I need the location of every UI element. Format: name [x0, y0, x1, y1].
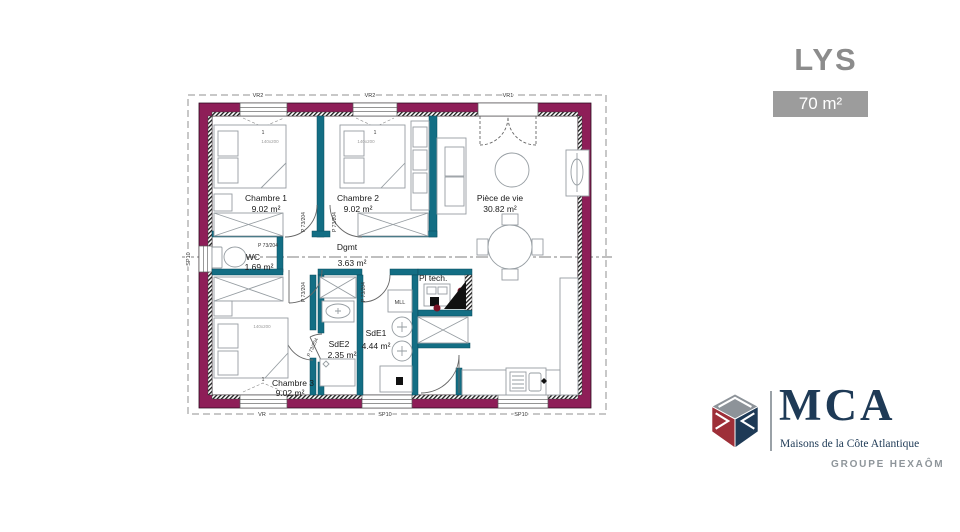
logo-group: GROUPE HEXAÔM — [831, 459, 944, 470]
window-ref-sp10-right: SP10 — [514, 412, 527, 418]
area-chambre3: 9.02 m² — [276, 388, 305, 398]
area-wc: 1.69 m² — [245, 262, 274, 272]
label-chambre3: Chambre 3 — [272, 378, 314, 388]
sde2-fixtures — [320, 277, 356, 386]
label-wc: WC — [246, 252, 260, 262]
area-chambre2: 9.02 m² — [344, 204, 373, 214]
door-ref: P 73/204 — [332, 212, 338, 232]
pane-count: 1 — [262, 130, 265, 136]
window-ref-sp10-left: SP10 — [186, 252, 192, 265]
tech-closet-hatch — [465, 275, 472, 310]
window-ref-vr2b: VR2 — [365, 93, 376, 99]
hall-closet — [418, 317, 468, 343]
area-sde2: 2.35 m² — [328, 350, 357, 360]
bed2-size: 140x200 — [357, 139, 375, 144]
bed-chambre-2 — [340, 125, 405, 188]
bed1-size: 140x200 — [261, 139, 279, 144]
dining-table — [477, 214, 543, 280]
logo-divider — [770, 391, 772, 451]
door-ref: P 73/204 — [306, 337, 320, 358]
label-dgmt: Dgmt — [337, 242, 358, 252]
area-piece-de-vie: 30.82 m² — [483, 204, 517, 214]
label-sde1: SdE1 — [366, 328, 387, 338]
door-ref: P 73/204 — [361, 282, 367, 302]
window-ref-sp10-mid: SP10 — [378, 412, 391, 418]
window-ref-vr2a: VR2 — [253, 93, 264, 99]
bed-chambre-3 — [214, 301, 288, 378]
page-title: LYS — [780, 42, 872, 78]
label-pl-tech: Pl tech. — [419, 273, 447, 283]
logo-acronym: MCA — [779, 380, 895, 432]
logo-company: Maisons de la Côte Atlantique — [780, 438, 919, 450]
pouf — [495, 153, 529, 187]
label-sde2: SdE2 — [329, 339, 350, 349]
wardrobe-chambre-1 — [214, 213, 283, 236]
sofa — [437, 138, 466, 214]
tech-equipment — [424, 281, 466, 312]
kitchen-counter — [462, 278, 578, 395]
area-dgmt: 3.63 m² — [338, 258, 367, 268]
wardrobe-chambre-2 — [358, 213, 428, 236]
shelving-chambre-2 — [411, 121, 429, 210]
sideboard — [566, 150, 589, 196]
label-washing-machine: MLL — [395, 300, 406, 306]
label-chambre2: Chambre 2 — [337, 193, 379, 203]
door-ref: P 73/204 — [301, 212, 307, 232]
window-ref-vr: VR — [258, 412, 266, 418]
area-badge: 70 m² — [773, 91, 868, 117]
floor-plan: Chambre 1 9.02 m² Chambre 2 9.02 m² Pièc… — [0, 0, 960, 532]
bed3-size: 140x200 — [253, 324, 271, 329]
door-ref: P 73/204 — [301, 282, 307, 302]
pane-count: 1 — [374, 130, 377, 136]
label-piece-de-vie: Pièce de vie — [477, 193, 524, 203]
toilet — [212, 247, 246, 268]
area-chambre1: 9.02 m² — [252, 204, 281, 214]
pane-count: 1 — [262, 377, 265, 383]
door-ref: P 73/204 — [258, 243, 278, 249]
mca-logo-cube — [706, 388, 764, 454]
wardrobe-chambre-3 — [214, 277, 283, 301]
area-sde1: 4.44 m² — [362, 341, 391, 351]
label-chambre1: Chambre 1 — [245, 193, 287, 203]
entry-double-door — [480, 116, 536, 145]
entry-ref-vr1: VR1 — [503, 93, 514, 99]
